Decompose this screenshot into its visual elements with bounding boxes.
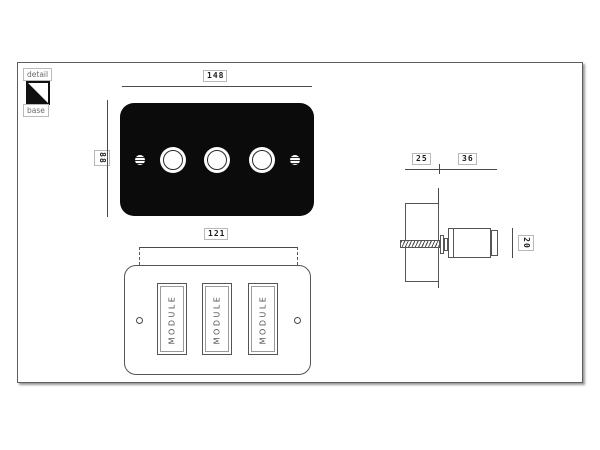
legend-base-label: base xyxy=(23,104,49,117)
knob-rim-line xyxy=(453,229,454,257)
screw-right-icon xyxy=(290,155,300,165)
dim-width-line xyxy=(122,86,312,87)
dim-depth-projection-line xyxy=(405,169,497,170)
dim-projection-label: 36 xyxy=(458,153,477,165)
module-label: MODULE xyxy=(168,294,177,344)
knob-end-cap xyxy=(491,230,498,256)
dim-height-line xyxy=(107,100,108,217)
dim-knob-value: 20 xyxy=(522,237,530,249)
dimmer-knob-3 xyxy=(249,147,275,173)
screw-left-icon xyxy=(135,155,145,165)
dim-split-tick xyxy=(439,164,440,174)
dimmer-knob-1 xyxy=(160,147,186,173)
dim-knob-line xyxy=(512,228,513,258)
module-label: MODULE xyxy=(259,294,268,344)
legend-detail-label: detail xyxy=(23,68,52,81)
knob-ring-icon xyxy=(252,150,272,170)
knob-side-body xyxy=(448,228,491,258)
module-slot-1: MODULE xyxy=(157,283,187,355)
technical-drawing-canvas: detail base 148 88 121 MODULE MODULE MOD… xyxy=(0,0,600,450)
dim-centers-line xyxy=(139,247,297,248)
dimmer-faceplate xyxy=(120,103,314,216)
dim-centers-label: 121 xyxy=(204,228,228,240)
dimmer-knob-2 xyxy=(204,147,230,173)
threaded-spindle xyxy=(400,240,440,248)
screw-hole-right xyxy=(294,317,301,324)
dim-width-label: 148 xyxy=(203,70,227,82)
screw-hole-left xyxy=(136,317,143,324)
dim-depth-label: 25 xyxy=(412,153,431,165)
finish-swatch-icon xyxy=(26,81,50,105)
dim-height-value: 88 xyxy=(98,152,106,164)
knob-ring-icon xyxy=(207,150,227,170)
knob-ring-icon xyxy=(163,150,183,170)
module-slot-3: MODULE xyxy=(248,283,278,355)
module-label: MODULE xyxy=(213,294,222,344)
module-slot-2: MODULE xyxy=(202,283,232,355)
dim-knob-label: 20 xyxy=(518,235,534,251)
